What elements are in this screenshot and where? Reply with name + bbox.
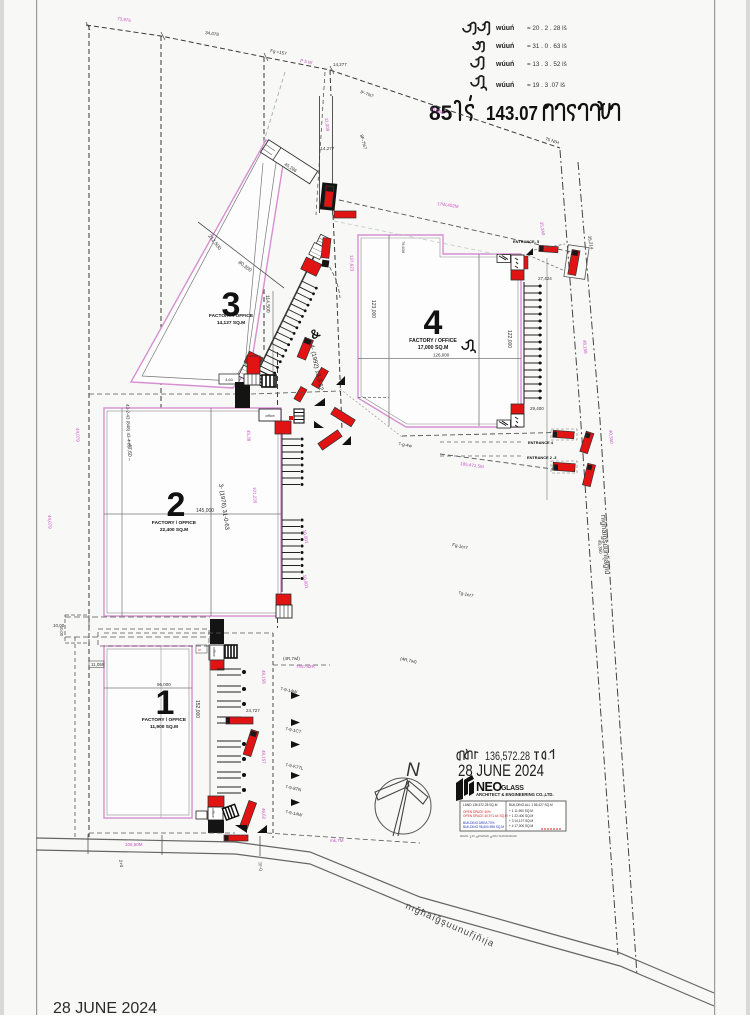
- svg-text:10,00: 10,00: [53, 623, 65, 628]
- svg-text:BUILDING 95,600,596 SQ.M: BUILDING 95,600,596 SQ.M: [463, 825, 504, 829]
- svg-text:122,000: 122,000: [506, 330, 512, 348]
- svg-text:105,50M: 105,50M: [125, 842, 143, 847]
- svg-text:= 20 . 2 . 28 lš: = 20 . 2 . 28 lš: [527, 25, 567, 32]
- svg-text:44,079: 44,079: [75, 428, 80, 442]
- svg-text:11,059: 11,059: [91, 662, 105, 667]
- svg-text:24,727: 24,727: [246, 708, 260, 713]
- svg-text:44,079: 44,079: [47, 515, 52, 529]
- svg-text:45,38: 45,38: [246, 430, 251, 442]
- svg-text:mk,7M: mk,7M: [330, 838, 344, 843]
- svg-text:145,000: 145,000: [196, 508, 214, 514]
- svg-text:+ 4 17,000 SQ.M: + 4 17,000 SQ.M: [509, 824, 534, 828]
- svg-text:LAND 136,572.28 SQ.M: LAND 136,572.28 SQ.M: [463, 803, 498, 807]
- svg-text:ªº¹²º¹ 1²º n²º¹²º¹²º u²º¹² º¹²: ªº¹²º¹ 1²º n²º¹²º¹²º u²º¹² º¹²º¹²º¹²º¹²º: [460, 834, 517, 839]
- svg-text:office: office: [212, 647, 217, 657]
- svg-text:126,000: 126,000: [433, 353, 450, 358]
- svg-text:FACTORY / OFFICE: FACTORY / OFFICE: [209, 313, 254, 319]
- svg-text:4: 4: [424, 304, 443, 342]
- svg-text:137,623: 137,623: [349, 255, 355, 272]
- svg-text:ENTRANCE- 5: ENTRANCE- 5: [513, 239, 540, 244]
- svg-text:123,000: 123,000: [370, 300, 376, 318]
- svg-text:29,400: 29,400: [530, 406, 544, 411]
- svg-text:14,127 SQ.M: 14,127 SQ.M: [217, 320, 245, 326]
- svg-text:+ 3 14,127 SQ.M: + 3 14,127 SQ.M: [509, 819, 534, 823]
- svg-text:101,235: 101,235: [252, 487, 258, 504]
- svg-text:office: office: [265, 413, 275, 418]
- svg-text:(4R,7wl): (4R,7wl): [283, 656, 300, 661]
- svg-text:27,424: 27,424: [538, 276, 552, 281]
- svg-text:76,636: 76,636: [401, 241, 406, 254]
- svg-text:22,400 SQ.M: 22,400 SQ.M: [160, 527, 188, 533]
- svg-text:N: N: [406, 760, 420, 781]
- svg-text:BUILDING ALL 1 55,427 SQ.M: BUILDING ALL 1 55,427 SQ.M: [509, 803, 553, 807]
- svg-text:143.07: 143.07: [486, 103, 538, 125]
- svg-text:ARCHITECT & ENGINEERING CO.,LT: ARCHITECT & ENGINEERING CO.,LTD.: [476, 792, 554, 797]
- svg-text:OPEN SPACE 40,971,64 SQ.M: OPEN SPACE 40,971,64 SQ.M: [463, 814, 508, 818]
- svg-text:wúuń: wúuń: [495, 61, 514, 68]
- svg-text:ENTRANCE 4: ENTRANCE 4: [528, 440, 554, 445]
- svg-text:14,277: 14,277: [321, 146, 335, 151]
- svg-text:= 13 . 3 . 52 lš: = 13 . 3 . 52 lš: [527, 61, 567, 68]
- svg-text:+ 1 11,900 SQ.M: + 1 11,900 SQ.M: [509, 809, 533, 813]
- svg-text:11,900 SQ.M: 11,900 SQ.M: [150, 724, 178, 730]
- svg-text:4,60: 4,60: [225, 377, 234, 382]
- svg-text:96,000: 96,000: [157, 682, 171, 687]
- svg-text:= 31 . 0 . 63 lš: = 31 . 0 . 63 lš: [527, 43, 567, 50]
- svg-text:ENTRANCE 2 -3: ENTRANCE 2 -3: [527, 455, 557, 460]
- svg-text:14,277: 14,277: [333, 62, 347, 67]
- svg-text:1: 1: [156, 684, 175, 722]
- svg-text:FACTORY / OFFICE: FACTORY / OFFICE: [142, 717, 187, 723]
- svg-text:= 19 . 3 .07 lš: = 19 . 3 .07 lš: [527, 82, 565, 89]
- svg-text:wúuń: wúuń: [495, 25, 514, 32]
- svg-text:28 JUNE 2024: 28 JUNE 2024: [53, 1000, 157, 1015]
- svg-text:17,000 SQ.M: 17,000 SQ.M: [418, 345, 449, 351]
- svg-text:48,158: 48,158: [261, 670, 266, 684]
- svg-text:wúuń: wúuń: [495, 43, 514, 50]
- svg-text:+ 1 22,400 SQ.M: + 1 22,400 SQ.M: [509, 814, 534, 818]
- svg-text:office: office: [211, 808, 216, 818]
- svg-text:FACTORY / OFFICE: FACTORY / OFFICE: [152, 520, 197, 526]
- svg-text:7NC-52R: 7NC-52R: [296, 664, 316, 669]
- svg-text:152,000: 152,000: [194, 700, 200, 718]
- svg-text:GLASS: GLASS: [501, 785, 524, 792]
- svg-text:46,62: 46,62: [261, 808, 266, 820]
- svg-text:114,500: 114,500: [264, 295, 271, 313]
- svg-text:2: 2: [167, 486, 186, 524]
- svg-text:wúuń: wúuń: [495, 82, 514, 89]
- svg-text:FACTORY / OFFICE: FACTORY / OFFICE: [409, 338, 457, 344]
- svg-text:ın: ın: [198, 647, 201, 652]
- svg-text:48,157: 48,157: [261, 750, 266, 764]
